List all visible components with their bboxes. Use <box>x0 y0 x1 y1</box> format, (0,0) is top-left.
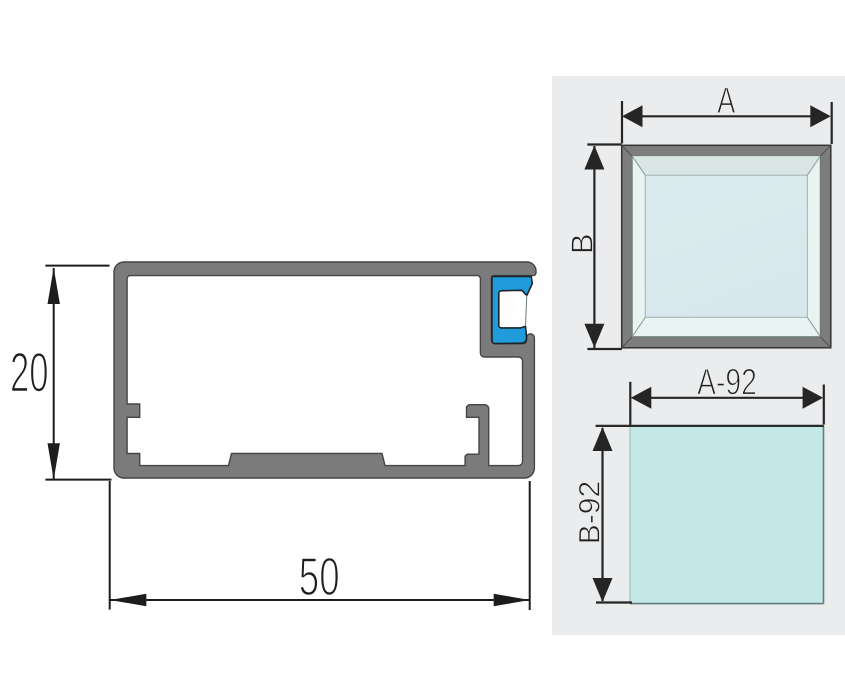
svg-text:20: 20 <box>10 341 49 404</box>
svg-text:B: B <box>565 233 600 254</box>
svg-text:B-92: B-92 <box>574 481 607 544</box>
svg-text:50: 50 <box>299 546 340 607</box>
svg-text:A: A <box>717 80 736 121</box>
svg-text:A-92: A-92 <box>697 361 757 403</box>
